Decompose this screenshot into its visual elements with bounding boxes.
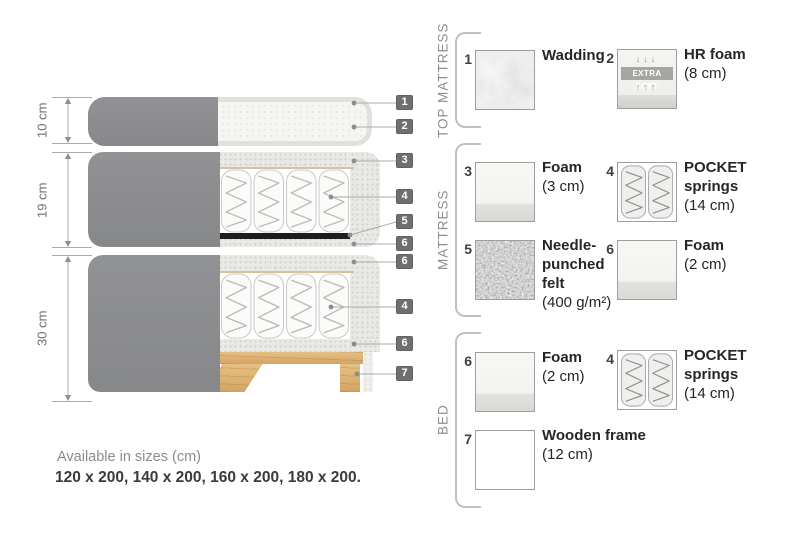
legend-item-number: 6 bbox=[599, 241, 614, 257]
side-edge-strip bbox=[363, 352, 373, 392]
foam-swatch bbox=[617, 240, 677, 300]
legend-item-detail: (2 cm) bbox=[684, 255, 760, 274]
section-title-top-mattress: TOP MATTRESS bbox=[433, 30, 453, 130]
needle-punched-felt-band bbox=[218, 233, 350, 239]
section-title-bed: BED bbox=[433, 405, 453, 435]
section-title-mattress: MATTRESS bbox=[433, 194, 453, 266]
legend-item-number: 5 bbox=[457, 241, 472, 257]
legend-item-number: 4 bbox=[599, 351, 614, 367]
fabric-cover bbox=[88, 255, 220, 392]
pocket-springs-swatch bbox=[617, 350, 677, 410]
callout-badge: 5 bbox=[396, 214, 413, 229]
legend-item-detail: (14 cm) bbox=[684, 384, 760, 403]
legend-item-detail: (12 cm) bbox=[542, 445, 672, 464]
legend-item-name: HR foam bbox=[684, 45, 760, 64]
legend-item-number: 1 bbox=[457, 51, 472, 67]
callout-badge: 6 bbox=[396, 254, 413, 269]
foam-swatch bbox=[475, 352, 535, 412]
arrows-down-icon: ↓↓↓ bbox=[618, 54, 676, 64]
callout-badge: 4 bbox=[396, 299, 413, 314]
extra-soft-ribbon: EXTRA SOFT bbox=[621, 67, 673, 80]
sizes-list: 120 x 200, 140 x 200, 160 x 200, 180 x 2… bbox=[55, 469, 361, 487]
pocket-springs-texture bbox=[618, 351, 676, 409]
callout-badge: 1 bbox=[396, 95, 413, 110]
foam-side-edge bbox=[350, 152, 380, 247]
legend-item-number: 7 bbox=[457, 431, 472, 447]
felt-swatch bbox=[475, 240, 535, 300]
legend-item-number: 2 bbox=[599, 50, 614, 66]
legend-item-number: 6 bbox=[457, 353, 472, 369]
dimension-label: 30 cm bbox=[33, 255, 51, 401]
felt-texture bbox=[476, 241, 534, 299]
legend-item-detail: (8 cm) bbox=[684, 64, 760, 83]
arrows-up-icon: ↑↑↑ bbox=[618, 82, 676, 92]
callout-badge: 2 bbox=[396, 119, 413, 134]
callout-badge: 7 bbox=[396, 366, 413, 381]
wadding-swatch bbox=[475, 50, 535, 110]
callout-badge: 6 bbox=[396, 236, 413, 251]
mattress-cross-section bbox=[88, 152, 380, 247]
callout-badge: 6 bbox=[396, 336, 413, 351]
legend-item-name: Foam bbox=[684, 236, 760, 255]
sizes-heading: Available in sizes (cm) bbox=[57, 449, 201, 465]
pocket-springs-texture bbox=[618, 163, 676, 221]
wadding-texture bbox=[476, 51, 534, 109]
fabric-cover bbox=[88, 152, 220, 247]
legend-item-detail: (14 cm) bbox=[684, 196, 760, 215]
dimension-label: 10 cm bbox=[33, 98, 51, 143]
legend-item-name: POCKET springs bbox=[684, 158, 760, 196]
foam-side-edge bbox=[350, 255, 380, 352]
pocket-springs-row bbox=[220, 273, 350, 339]
legend-item-name: Wooden frame bbox=[542, 426, 672, 445]
dimension-label: 19 cm bbox=[33, 153, 51, 247]
callout-badge: 3 bbox=[396, 153, 413, 168]
legend-item-detail: (2 cm) bbox=[542, 367, 618, 386]
pocket-springs-row bbox=[220, 169, 350, 233]
wood-swatch bbox=[475, 430, 535, 490]
wooden-leg-right bbox=[340, 364, 360, 392]
top-mattress-cross-section bbox=[88, 97, 372, 146]
pocket-springs-swatch bbox=[617, 162, 677, 222]
legend-item-number: 4 bbox=[599, 163, 614, 179]
legend-item-name: POCKET springs bbox=[684, 346, 760, 384]
legend-item-detail: (3 cm) bbox=[542, 177, 618, 196]
bed-cross-section bbox=[88, 255, 380, 392]
hr-foam-swatch: ↓↓↓ EXTRA SOFT ↑↑↑ bbox=[617, 49, 677, 109]
callout-badge: 4 bbox=[396, 189, 413, 204]
fabric-cover bbox=[88, 97, 218, 146]
foam-swatch bbox=[475, 162, 535, 222]
wooden-slat-rail bbox=[218, 352, 364, 364]
infographic-canvas: 10 cm 19 cm 30 cm 1 2 3 4 5 6 6 4 6 7 TO… bbox=[0, 0, 800, 533]
legend-item-number: 3 bbox=[457, 163, 472, 179]
